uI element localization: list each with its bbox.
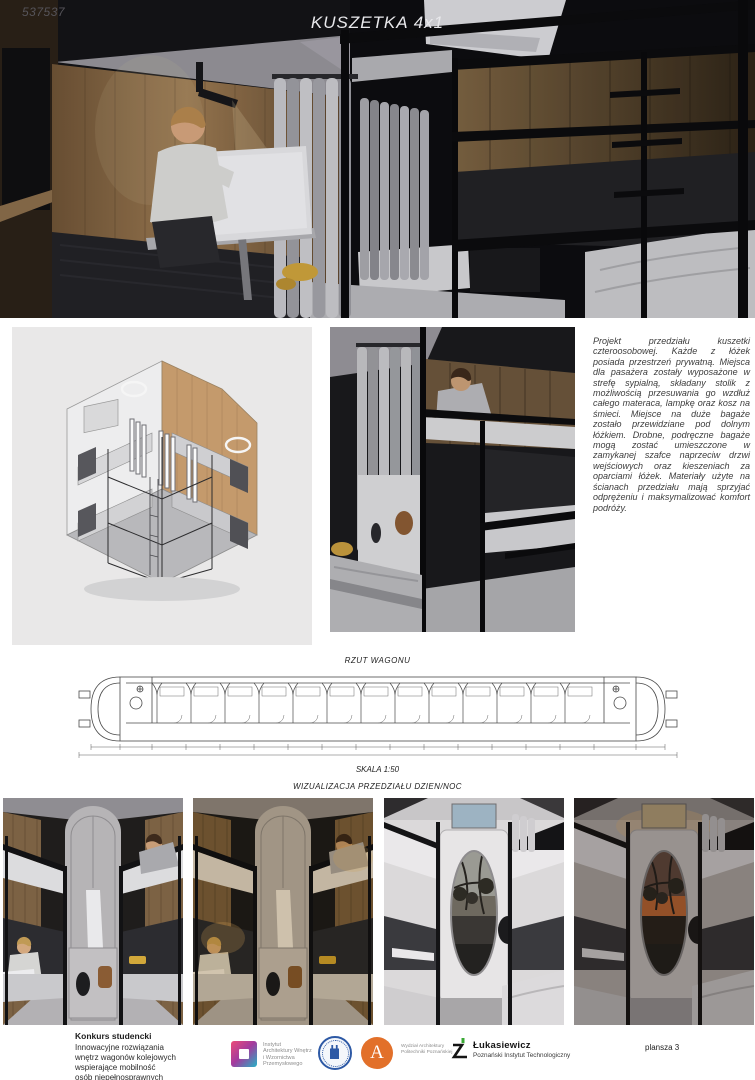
architecture-faculty-logo: A bbox=[361, 1037, 393, 1069]
axonometry-panel: AKSONOMETRIA bbox=[12, 327, 312, 645]
hero-render: 537537 KUSZETKA 4x1 bbox=[0, 0, 755, 318]
iawiwp-logo bbox=[231, 1041, 257, 1067]
board-number-label: plansza 3 bbox=[645, 1043, 679, 1052]
lukasiewicz-subtitle: Poznański Instytut Technologiczny bbox=[473, 1052, 570, 1059]
competition-line: wnętrz wagonów kolejowych bbox=[75, 1053, 176, 1063]
viz-render-room-day bbox=[3, 798, 183, 1025]
viz-render-room-night bbox=[193, 798, 373, 1025]
competition-board: 537537 KUSZETKA 4x1 bbox=[0, 0, 755, 1080]
axonometry-drawing bbox=[12, 327, 312, 645]
wagon-plan-drawing bbox=[78, 667, 678, 759]
detail-render bbox=[330, 327, 575, 632]
hero-render-scene bbox=[0, 0, 755, 318]
lukasiewicz-name: Łukasiewicz bbox=[473, 1040, 531, 1051]
page-title: KUSZETKA 4x1 bbox=[0, 13, 755, 33]
iawiwp-line: Architektury Wnętrz bbox=[263, 1048, 312, 1054]
wa-line: Politechniki Poznańskiej bbox=[401, 1050, 452, 1056]
iawiwp-line: Przemysłowego bbox=[263, 1061, 312, 1067]
competition-line: osób niepełnosprawnych bbox=[75, 1073, 176, 1080]
footer-competition-info: Konkurs studencki Innowacyjne rozwiązani… bbox=[75, 1031, 176, 1080]
viz-render-door-day bbox=[384, 798, 564, 1025]
scale-label: SKALA 1:50 bbox=[0, 765, 755, 774]
politechnika-seal-logo bbox=[318, 1036, 352, 1070]
competition-line: wspierające mobilność bbox=[75, 1063, 176, 1073]
detail-render-scene bbox=[330, 327, 575, 632]
architecture-faculty-text: Wydział Architektury Politechniki Poznań… bbox=[401, 1044, 452, 1056]
iawiwp-logo-hole bbox=[239, 1049, 249, 1059]
visualization-title: WIZUALIZACJA PRZEDZIAŁU DZIEN/NOC bbox=[0, 782, 755, 791]
competition-title: Konkurs studencki bbox=[75, 1031, 176, 1041]
project-description: Projekt przedziału kuszetki czteroosobow… bbox=[593, 336, 750, 513]
iawiwp-logo-text: Instytut Architektury Wnętrz i Wzornictw… bbox=[263, 1042, 312, 1068]
wagon-plan-title: RZUT WAGONU bbox=[0, 656, 755, 665]
viz-render-door-night bbox=[574, 798, 754, 1025]
competition-line: Innowacyjne rozwiązania bbox=[75, 1043, 176, 1053]
lukasiewicz-logo bbox=[449, 1037, 471, 1066]
